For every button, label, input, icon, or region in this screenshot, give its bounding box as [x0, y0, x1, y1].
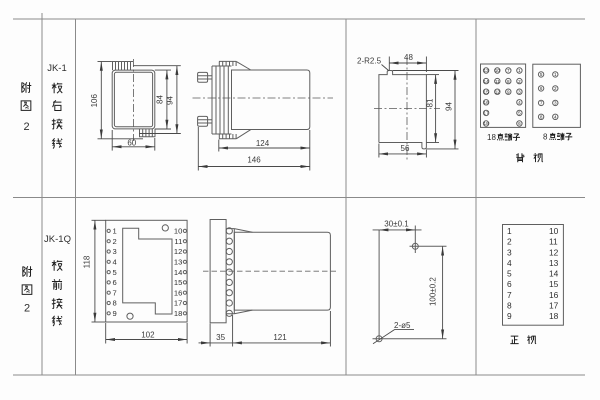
svg-text:8: 8 [507, 301, 512, 311]
svg-text:10: 10 [549, 226, 559, 236]
svg-text:1: 1 [113, 227, 117, 236]
svg-text:8: 8 [507, 79, 510, 84]
svg-text:2: 2 [23, 121, 29, 133]
svg-text:12: 12 [495, 89, 501, 94]
svg-text:84: 84 [156, 95, 165, 104]
svg-text:30±0.1: 30±0.1 [384, 220, 409, 229]
svg-text:17: 17 [484, 111, 490, 116]
svg-text:5: 5 [540, 72, 543, 77]
svg-text:2: 2 [507, 237, 512, 247]
svg-text:12: 12 [549, 247, 559, 257]
svg-text:18: 18 [487, 133, 496, 142]
svg-text:6: 6 [540, 86, 543, 91]
svg-text:17: 17 [174, 299, 182, 308]
svg-text:14: 14 [549, 269, 559, 279]
svg-text:13: 13 [484, 68, 490, 73]
svg-text:60: 60 [127, 138, 136, 147]
svg-text:6: 6 [518, 121, 521, 126]
svg-text:146: 146 [247, 155, 261, 164]
svg-text:8: 8 [113, 299, 117, 308]
svg-text:10: 10 [495, 68, 501, 73]
svg-text:15: 15 [484, 89, 490, 94]
svg-text:3: 3 [518, 89, 521, 94]
svg-text:9: 9 [507, 89, 510, 94]
svg-text:14: 14 [484, 79, 490, 84]
svg-text:11: 11 [174, 237, 182, 246]
svg-text:6: 6 [113, 278, 117, 287]
svg-text:11: 11 [549, 237, 558, 247]
svg-text:35: 35 [216, 333, 225, 342]
svg-text:12: 12 [174, 247, 182, 256]
svg-text:18: 18 [174, 309, 182, 318]
svg-text:6: 6 [507, 279, 512, 289]
svg-text:11: 11 [495, 79, 500, 84]
svg-text:118: 118 [82, 255, 91, 268]
svg-text:16: 16 [174, 288, 182, 297]
svg-text:1: 1 [507, 226, 512, 236]
svg-text:7: 7 [540, 101, 543, 106]
svg-text:106: 106 [90, 93, 99, 107]
svg-text:4: 4 [554, 115, 557, 120]
svg-text:9: 9 [113, 309, 117, 318]
svg-text:13: 13 [174, 258, 182, 267]
svg-text:14: 14 [174, 268, 182, 277]
svg-text:124: 124 [256, 139, 270, 148]
svg-text:7: 7 [113, 288, 117, 297]
svg-text:15: 15 [174, 278, 182, 287]
svg-text:7: 7 [507, 290, 512, 300]
svg-text:94: 94 [445, 102, 454, 111]
svg-text:2: 2 [113, 237, 117, 246]
svg-text:10: 10 [174, 227, 182, 236]
svg-text:16: 16 [484, 100, 490, 105]
svg-text:2: 2 [554, 86, 557, 91]
svg-text:4: 4 [518, 100, 521, 105]
svg-text:9: 9 [507, 311, 512, 321]
svg-text:2-ø5: 2-ø5 [394, 321, 411, 330]
svg-text:15: 15 [549, 279, 559, 289]
svg-text:2: 2 [24, 303, 30, 315]
svg-text:8: 8 [540, 115, 543, 120]
svg-text:7: 7 [507, 68, 510, 73]
svg-text:JK-1Q: JK-1Q [44, 234, 71, 245]
svg-text:100±0.2: 100±0.2 [429, 277, 438, 306]
svg-text:17: 17 [549, 301, 559, 311]
svg-text:3: 3 [554, 101, 557, 106]
svg-text:13: 13 [549, 258, 559, 268]
svg-text:4: 4 [507, 258, 512, 268]
svg-text:2: 2 [518, 79, 521, 84]
svg-text:81: 81 [426, 98, 435, 107]
svg-text:18: 18 [484, 121, 490, 126]
svg-text:8: 8 [543, 132, 548, 141]
svg-text:48: 48 [404, 53, 413, 62]
svg-text:94: 94 [166, 96, 175, 105]
svg-text:1: 1 [518, 68, 521, 73]
svg-text:1: 1 [554, 72, 557, 77]
svg-text:4: 4 [113, 258, 117, 267]
svg-text:18: 18 [549, 311, 559, 321]
svg-text:3: 3 [507, 247, 512, 257]
svg-text:56: 56 [401, 144, 410, 153]
svg-text:121: 121 [273, 333, 287, 342]
svg-text:16: 16 [549, 290, 559, 300]
svg-text:5: 5 [518, 111, 521, 116]
svg-text:102: 102 [141, 331, 155, 340]
svg-text:JK-1: JK-1 [47, 63, 67, 74]
svg-text:5: 5 [113, 268, 117, 277]
svg-text:3: 3 [113, 247, 117, 256]
svg-text:2-R2.5: 2-R2.5 [357, 56, 382, 65]
svg-text:5: 5 [507, 269, 512, 279]
